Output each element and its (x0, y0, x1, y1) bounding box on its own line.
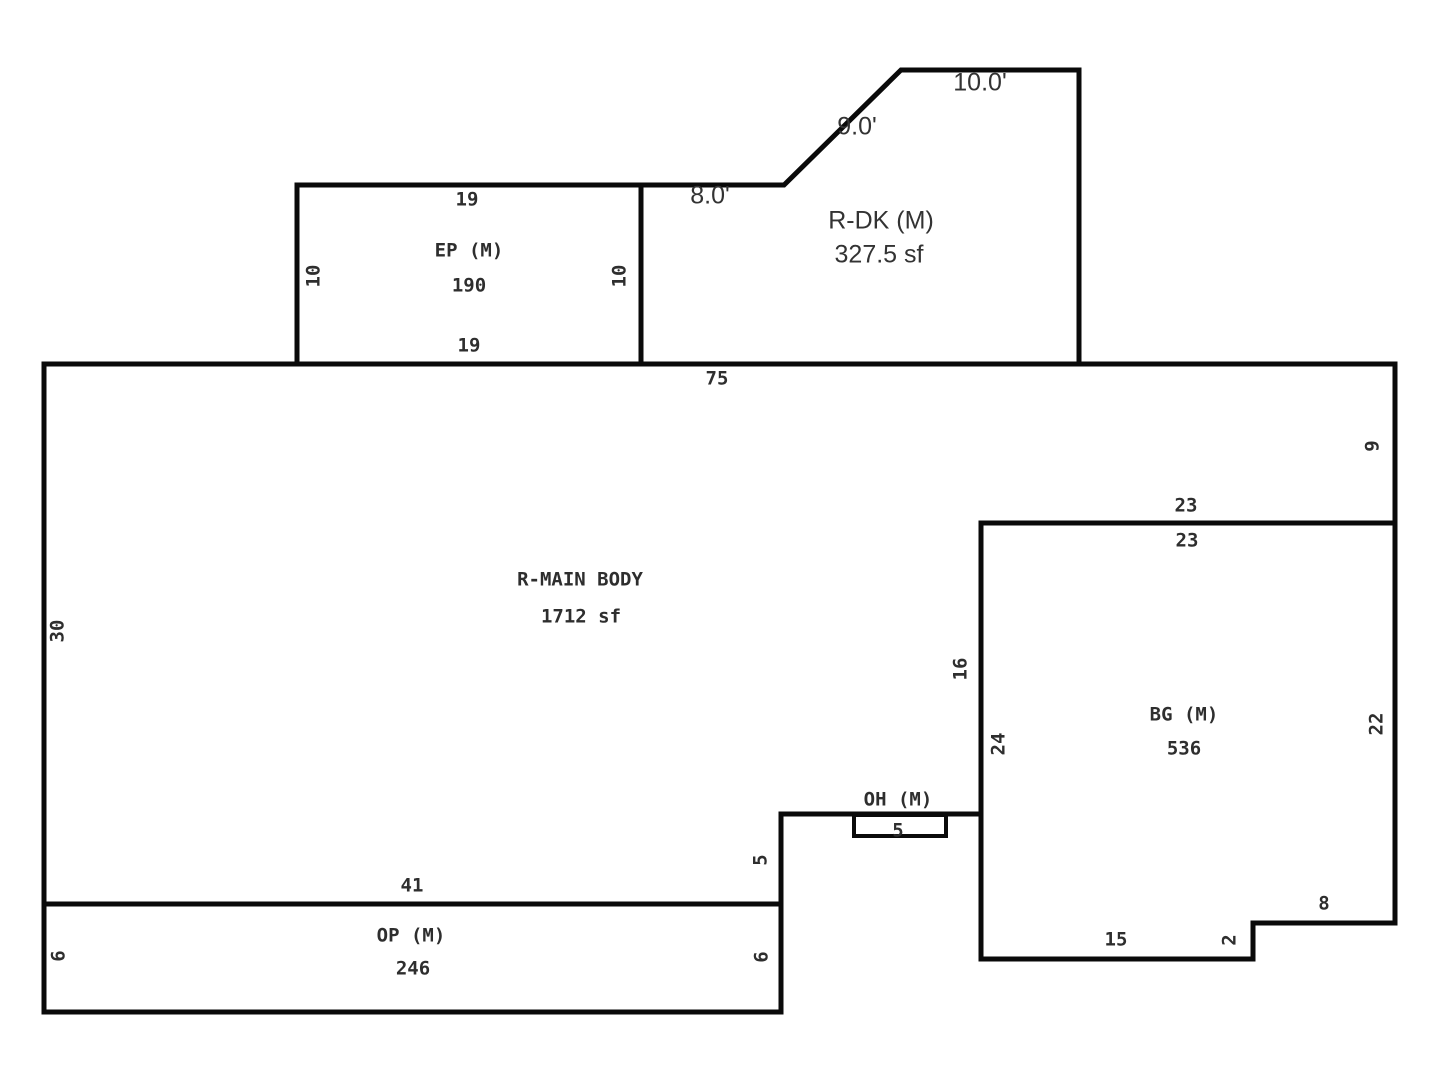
main-left-dim: 30 (49, 620, 68, 643)
main-bg-side-dim: 16 (952, 658, 971, 681)
op-left-dim: 6 (50, 950, 69, 961)
op-area-value: 246 (396, 960, 430, 979)
main-right-dim: 9 (1364, 440, 1383, 451)
bg-area-value: 536 (1167, 740, 1201, 759)
ep-right-dim: 10 (611, 265, 630, 288)
ep-left-dim: 10 (305, 265, 324, 288)
ep-bottom-dim: 19 (458, 337, 481, 356)
bg-right-dim: 22 (1368, 713, 1387, 736)
oh-width-dim: 5 (892, 822, 903, 841)
floor-plan-outline (0, 0, 1440, 1080)
op-room-name: OP (M) (377, 927, 446, 946)
rdk-area-value: 327.5 sf (835, 243, 924, 268)
main-bottom-dim: 41 (401, 877, 424, 896)
bg-room-name: BG (M) (1150, 706, 1219, 725)
rdk-left-dim: 8.0' (690, 184, 730, 209)
ep-top-dim: 19 (456, 191, 479, 210)
main-step-dim: 5 (752, 854, 771, 865)
main-top-dim: 75 (706, 370, 729, 389)
bg-bottom-dim: 15 (1105, 931, 1128, 950)
bg-notch-step-dim: 2 (1221, 934, 1240, 945)
bg-top-dim-outer: 23 (1175, 497, 1198, 516)
main-room-name: R-MAIN BODY (517, 571, 643, 590)
rdk-diagonal-dim: 9.0' (837, 115, 877, 140)
oh-room-name: OH (M) (864, 791, 933, 810)
rdk-room-name: R-DK (M) (828, 209, 934, 234)
op-right-dim: 6 (753, 951, 772, 962)
floor-plan-sketch: 1910EP (M)19010198.0'9.0'10.0'R-DK (M)32… (0, 0, 1440, 1080)
bg-top-dim-inner: 23 (1176, 532, 1199, 551)
main-body-outline (44, 364, 1395, 904)
ep-room-name: EP (M) (435, 242, 504, 261)
main-area-value: 1712 sf (541, 608, 621, 627)
rdk-top-dim: 10.0' (953, 71, 1006, 96)
ep-area-value: 190 (452, 277, 486, 296)
bg-left-dim: 24 (990, 733, 1009, 756)
bg-notch-dim: 8 (1318, 895, 1329, 914)
